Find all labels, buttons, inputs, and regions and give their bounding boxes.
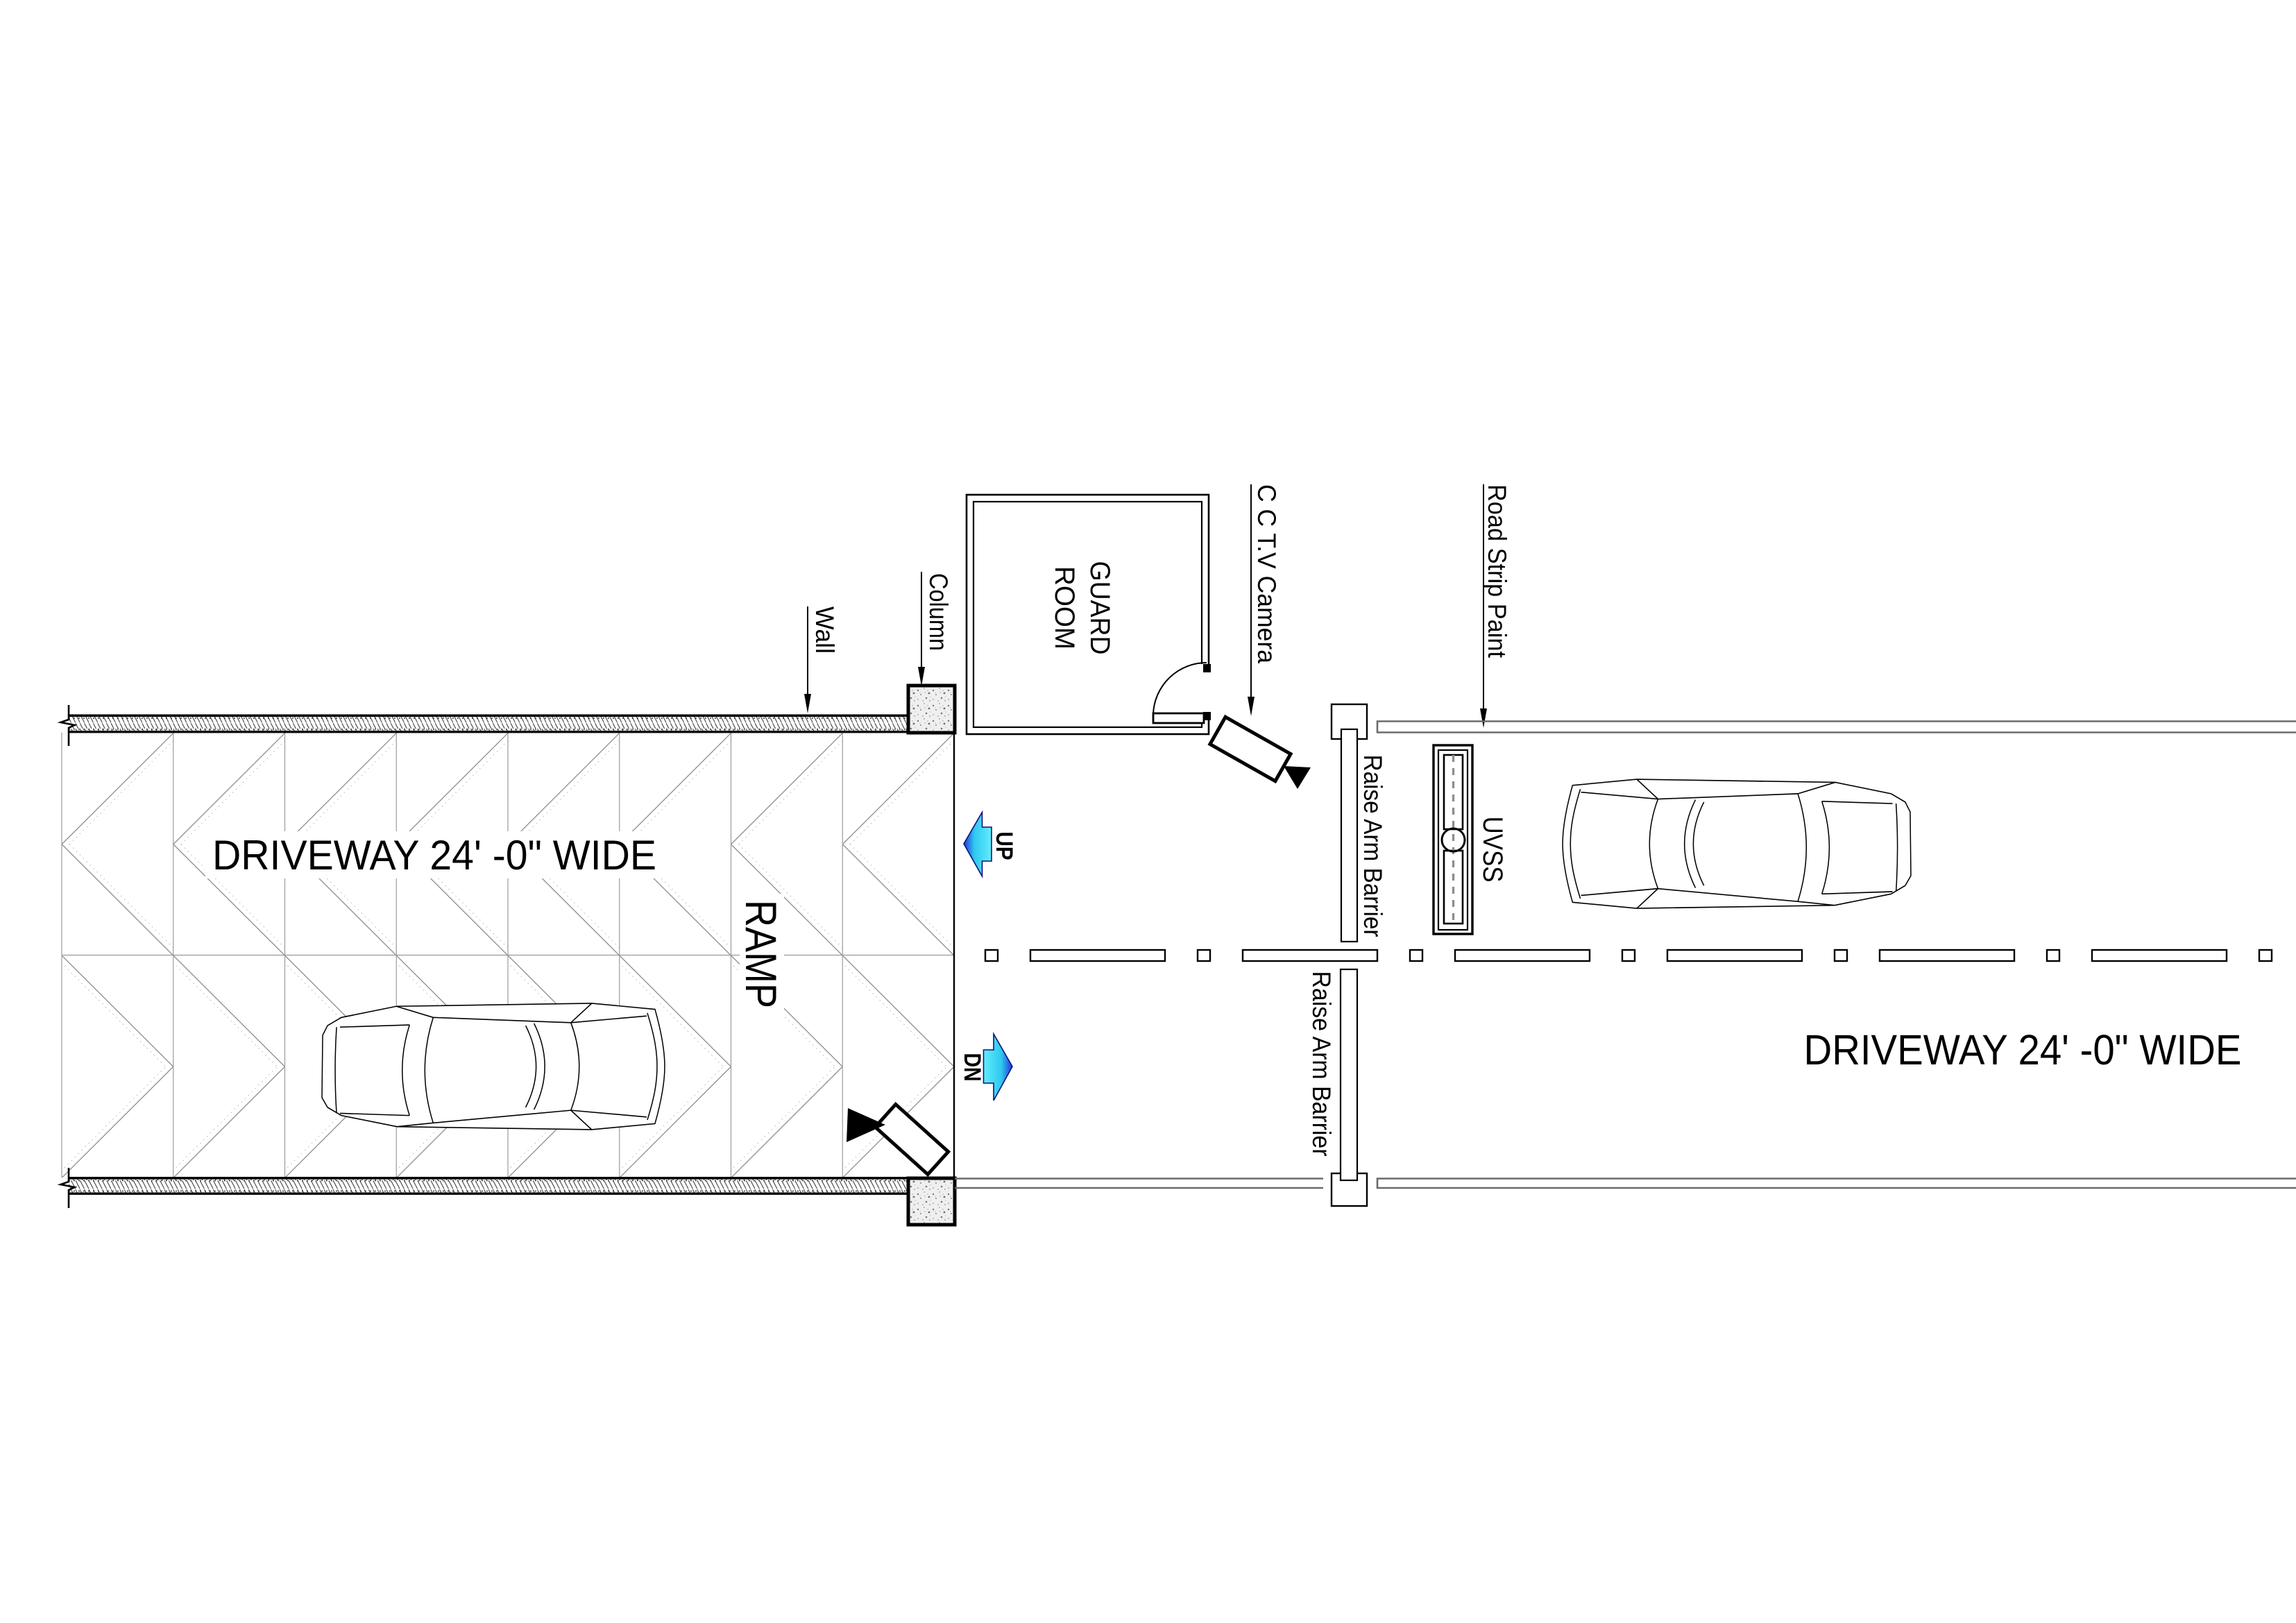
svg-text:Raise Arm Barrier: Raise Arm Barrier [1359, 755, 1387, 937]
svg-text:Wall: Wall [810, 606, 839, 654]
svg-text:Raise Arm Barrier: Raise Arm Barrier [1307, 971, 1336, 1157]
svg-text:Road Strip Paint: Road Strip Paint [1483, 484, 1511, 658]
svg-text:DN: DN [959, 1053, 985, 1082]
svg-text:DRIVEWAY 24' -0" WIDE: DRIVEWAY 24' -0" WIDE [212, 832, 656, 878]
svg-text:UP: UP [991, 832, 1017, 860]
svg-text:RAMP: RAMP [736, 900, 785, 1008]
svg-text:C C T.V Camera: C C T.V Camera [1252, 484, 1281, 663]
svg-text:Column: Column [924, 573, 953, 651]
svg-text:ROOM: ROOM [1049, 566, 1080, 649]
svg-text:DRIVEWAY 24' -0" WIDE: DRIVEWAY 24' -0" WIDE [1804, 1026, 2242, 1073]
svg-text:UVSS: UVSS [1477, 817, 1508, 883]
svg-text:GUARD: GUARD [1085, 561, 1115, 655]
